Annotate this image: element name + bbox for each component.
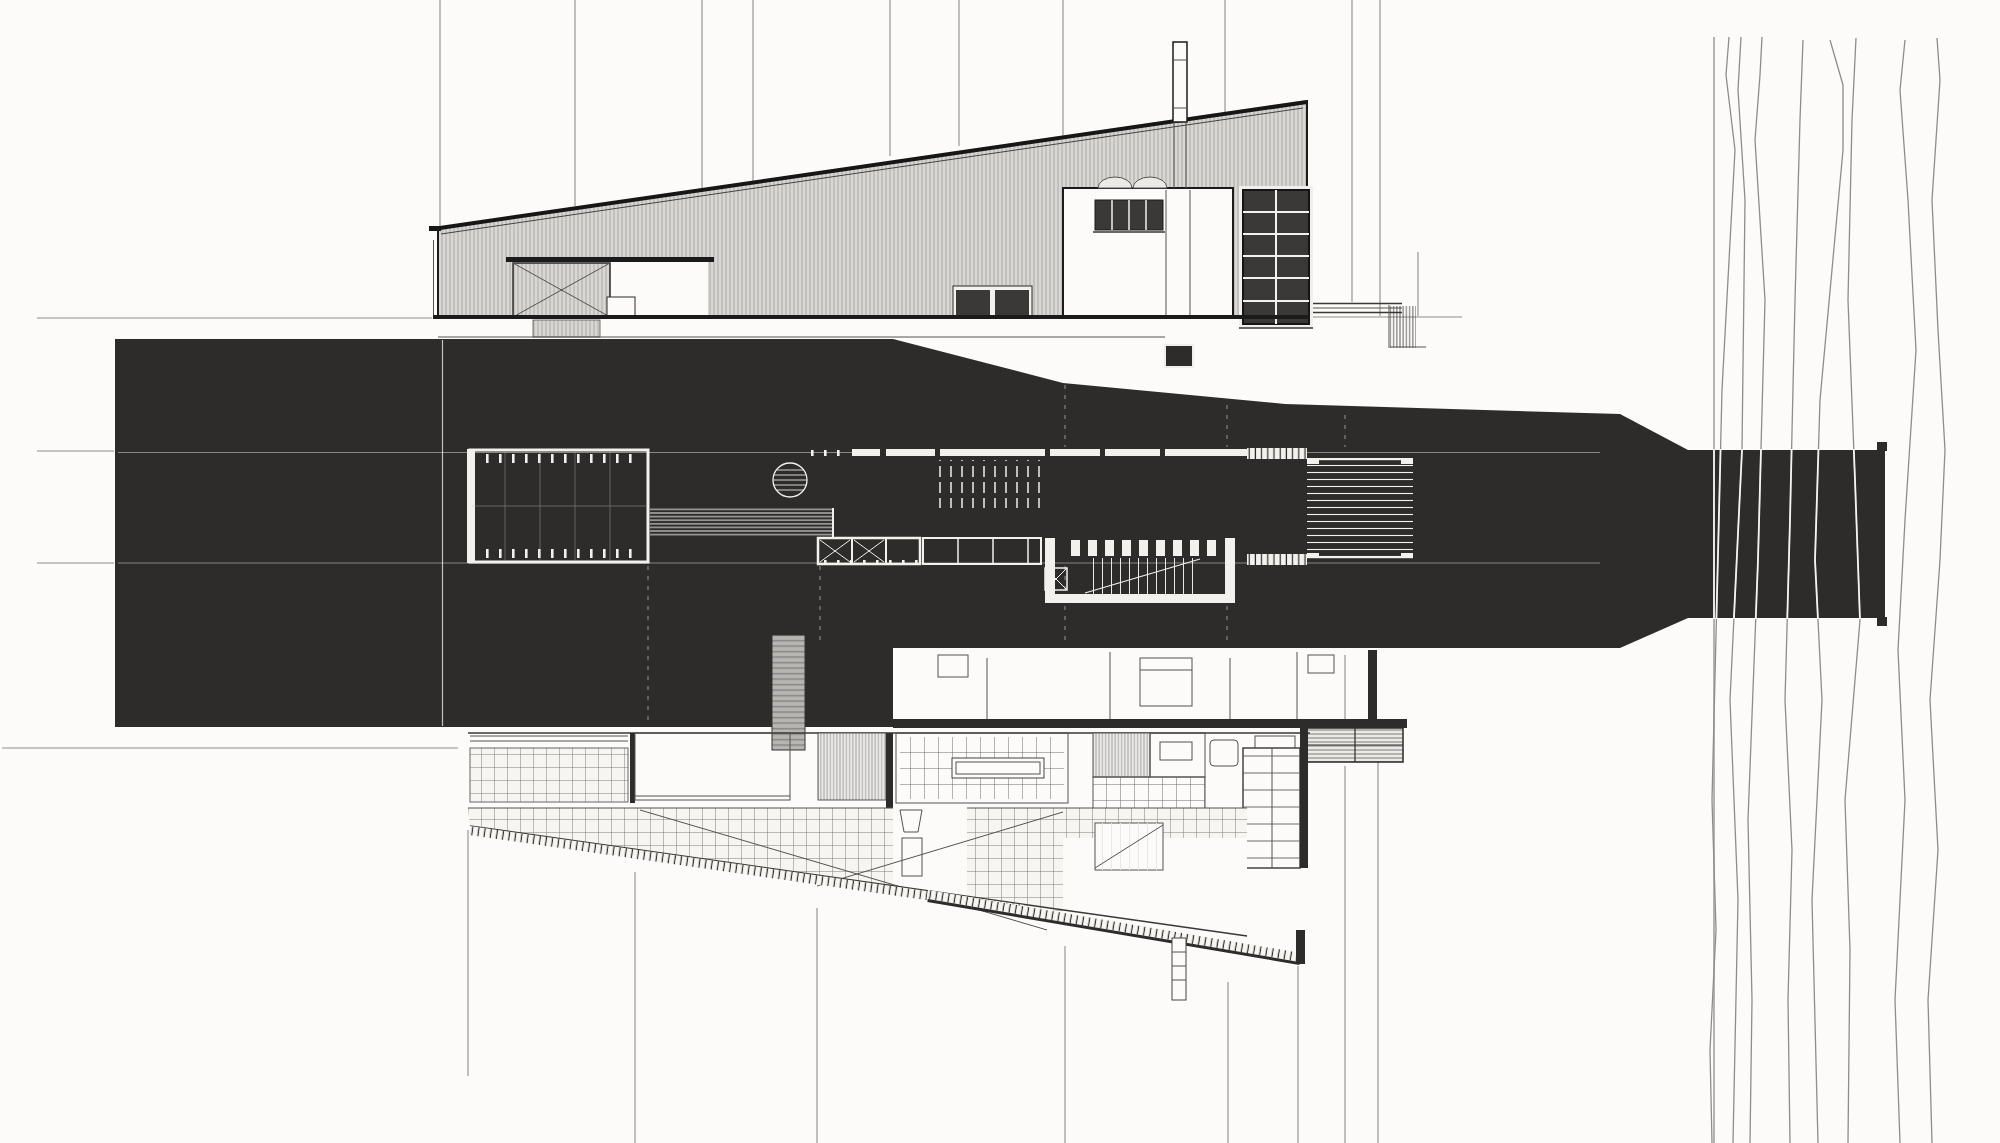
courtyard-comb-bottom [476,549,642,558]
river-contour-line-over-bridge [1928,38,1945,1143]
rooms-strip-bottom-wall [893,719,1407,728]
tall-shelf [1243,727,1308,868]
furniture-1 [938,655,968,677]
door-lintel [506,257,714,262]
table-room [1150,733,1205,777]
rooms-strip-partitions [987,652,1297,719]
chimney-flue [1173,42,1187,122]
furniture-2 [1308,655,1334,673]
kitchen-grid [896,733,1068,803]
plan-poche [115,339,1885,727]
striped-room [1093,733,1150,777]
architectural-drawing-sheet [0,0,2000,1143]
long-bench-slats [650,508,833,537]
furniture-bed [1140,658,1192,706]
stair-room-wall-bottom [1045,594,1235,603]
stair-comb [1390,306,1416,348]
hatched-balcony [1307,728,1403,762]
terrace-room [635,733,790,800]
interior-wall-row [805,449,1247,456]
stair-hatch-block [937,460,1049,508]
louvered-deck [1307,458,1413,558]
wall-dash-segment [805,450,850,456]
stair-room-wall-right [1225,538,1235,603]
wall-end-tab [1296,930,1305,964]
river-contour-line [1895,40,1916,1143]
clerestory-tower [1063,177,1233,318]
river-contour-line [1928,38,1945,1143]
rooms-strip-end-wall [1368,650,1377,720]
lower-stair [1095,823,1163,870]
gridded-window-panel [1239,186,1313,328]
window-pane-right [995,290,1029,316]
window-pane-left [956,290,990,316]
stair-room-wall-left [1045,538,1055,602]
small-ladder [1172,938,1186,1000]
tower-base-pit [1165,345,1193,367]
deck-louvers [1307,460,1413,557]
drawing-svg [0,0,2000,1143]
low-window-pair [953,286,1032,318]
eave-left-cap [429,226,441,231]
long-bench [650,508,833,537]
x-rooms-comb [818,560,920,565]
wall-c [1300,727,1308,868]
lower-wing-plan [468,727,1310,1000]
fixture-wc [1210,740,1238,766]
wall-a [630,733,635,803]
river-contour-line-over-bridge [1895,40,1916,1143]
stair-room-teeth [1063,540,1223,556]
paving-grid-upper [470,748,628,802]
right-balcony-stair [1313,304,1426,349]
main-plan-mass [115,339,1887,727]
kitchen-island [952,758,1044,778]
table [1160,742,1192,760]
courtyard-comb-top [476,454,642,463]
small-wall-vent [607,297,635,317]
door-track-ramp [533,320,600,337]
bridge-end-tab-top [1877,442,1887,451]
bridge-end-tab-bottom [1877,617,1887,626]
upper-elevation [429,42,1426,367]
ground-line [433,315,1310,319]
decking-panel [818,733,886,800]
